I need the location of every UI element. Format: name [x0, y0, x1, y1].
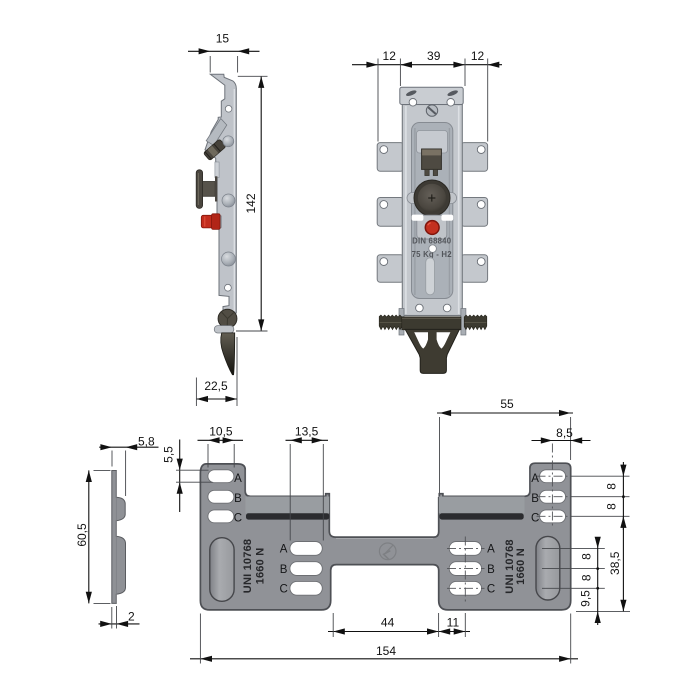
- svg-text:60,5: 60,5: [75, 523, 89, 547]
- svg-text:12: 12: [471, 49, 485, 63]
- svg-text:8: 8: [605, 503, 619, 510]
- svg-text:A: A: [531, 473, 539, 485]
- svg-text:13,5: 13,5: [295, 425, 319, 439]
- svg-text:5,8: 5,8: [138, 435, 155, 449]
- svg-text:B: B: [234, 493, 242, 505]
- svg-text:B: B: [280, 564, 288, 576]
- svg-text:A: A: [487, 544, 495, 556]
- svg-text:9,5: 9,5: [579, 590, 593, 607]
- svg-text:A: A: [234, 473, 242, 485]
- svg-text:8: 8: [605, 483, 619, 490]
- svg-text:55: 55: [500, 397, 514, 411]
- svg-text:1660 N: 1660 N: [255, 548, 267, 585]
- svg-text:C: C: [531, 513, 539, 525]
- svg-text:DIN 68840: DIN 68840: [412, 236, 452, 245]
- svg-text:39: 39: [427, 49, 441, 63]
- svg-text:15: 15: [216, 32, 230, 46]
- svg-text:10,5: 10,5: [209, 424, 233, 438]
- svg-text:22,5: 22,5: [204, 379, 228, 393]
- svg-text:2: 2: [128, 610, 135, 624]
- svg-text:1660 N: 1660 N: [515, 548, 527, 585]
- svg-text:8: 8: [579, 574, 593, 581]
- svg-text:B: B: [487, 564, 495, 576]
- svg-text:C: C: [234, 513, 242, 525]
- svg-text:A: A: [280, 544, 288, 556]
- svg-text:B: B: [531, 493, 539, 505]
- svg-text:154: 154: [376, 644, 396, 658]
- svg-text:UNI 10768: UNI 10768: [242, 539, 254, 593]
- svg-text:C: C: [487, 584, 495, 596]
- svg-text:12: 12: [383, 49, 397, 63]
- svg-text:8: 8: [579, 553, 593, 560]
- svg-text:142: 142: [244, 193, 258, 213]
- svg-text:5,5: 5,5: [161, 446, 175, 463]
- svg-text:11: 11: [447, 616, 460, 630]
- svg-text:8,5: 8,5: [556, 426, 573, 440]
- svg-text:44: 44: [381, 616, 395, 630]
- svg-text:C: C: [279, 584, 287, 596]
- svg-text:38,5: 38,5: [608, 551, 622, 575]
